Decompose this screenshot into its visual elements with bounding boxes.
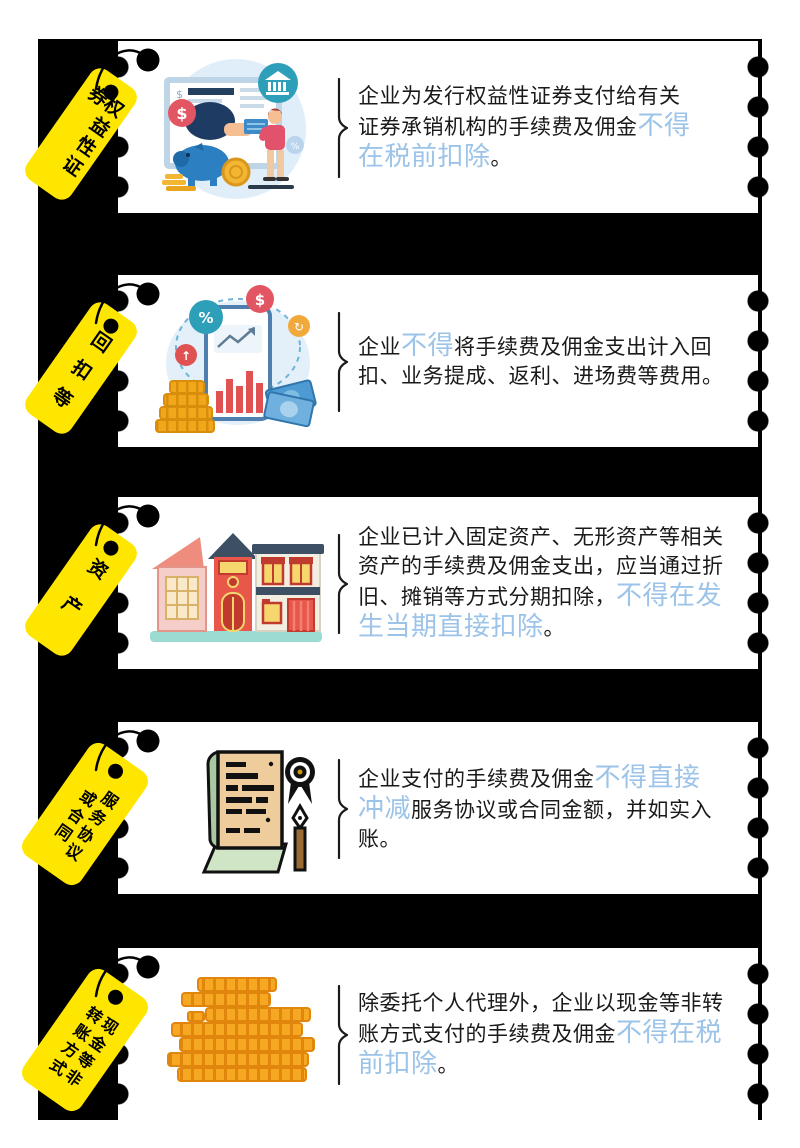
text-segment: 企业	[358, 336, 401, 359]
perforation-dots-right	[747, 963, 769, 1115]
card-text: 企业已计入固定资产、无形资产等相关 资产的手续费及佣金支出，应当通过折 旧、摊销…	[358, 497, 744, 669]
text-line: 生当期直接扣除。	[358, 612, 744, 643]
pin-dot	[137, 730, 160, 753]
highlight-segment: 生当期直接扣除	[358, 611, 544, 641]
info-row-rebates: 回扣等	[38, 275, 762, 447]
pin-dot	[137, 283, 160, 306]
pin-dot	[137, 505, 160, 528]
text-line: 除委托个人代理外，企业以现金等非转	[358, 989, 744, 1018]
text-segment: 企业支付的手续费及佣金	[358, 768, 595, 791]
text-line: 在税前扣除。	[358, 142, 744, 173]
text-line: 企业支付的手续费及佣金不得直接	[358, 763, 744, 794]
text-segment: 企业已计入固定资产、无形资产等相关	[358, 526, 724, 549]
highlight-segment: 不得	[638, 110, 691, 140]
text-line: 企业为发行权益性证券支付给有关	[358, 82, 744, 111]
perforation-dots-right	[747, 512, 769, 664]
string-and-pin	[78, 716, 198, 786]
text-line: 旧、摊销等方式分期扣除，不得在发	[358, 581, 744, 612]
tag-label: 回扣等	[39, 327, 113, 421]
card-text: 企业不得将手续费及佣金支出计入回 扣、业务提成、返利、进场费等费用。	[358, 275, 744, 447]
text-segment: 旧、摊销等方式分期扣除，	[358, 586, 616, 609]
text-segment: 。	[438, 1054, 460, 1077]
perforation-dots-right	[747, 737, 769, 889]
divider-chevron	[337, 533, 353, 635]
text-line: 证券承销机构的手续费及佣金不得	[358, 111, 744, 142]
text-segment: 企业为发行权益性证券支付给有关	[358, 85, 681, 108]
text-line: 扣、业务提成、返利、进场费等费用。	[358, 362, 744, 391]
text-segment: 将手续费及佣金支出计入回	[454, 336, 712, 359]
string-and-pin	[78, 942, 198, 1012]
svg-text:%: %	[198, 309, 213, 327]
pin-dot	[137, 956, 160, 979]
text-line: 企业已计入固定资产、无形资产等相关	[358, 523, 744, 552]
text-line: 账。	[358, 825, 744, 854]
divider-chevron	[337, 77, 353, 179]
text-segment: 服务协议或合同金额，并如实入	[411, 799, 712, 822]
string-and-pin	[78, 491, 198, 561]
highlight-segment: 不得在税	[616, 1017, 722, 1047]
string-and-pin	[78, 35, 198, 105]
perforation-dots-right	[747, 56, 769, 208]
divider-chevron	[337, 311, 353, 413]
highlight-segment: 不得直接	[595, 762, 701, 792]
text-line: 资产的手续费及佣金支出，应当通过折	[358, 552, 744, 581]
perforation-dots-right	[747, 290, 769, 442]
divider-chevron	[337, 758, 353, 860]
text-segment: 除委托个人代理外，企业以现金等非转	[358, 992, 724, 1015]
svg-text:%: %	[291, 142, 300, 152]
string-and-pin	[78, 269, 198, 339]
card-text: 企业支付的手续费及佣金不得直接 冲减服务协议或合同金额，并如实入 账。	[358, 722, 744, 894]
highlight-segment: 在税前扣除	[358, 141, 491, 171]
info-card: 企业已计入固定资产、无形资产等相关 资产的手续费及佣金支出，应当通过折 旧、摊销…	[118, 497, 758, 669]
black-panel: 权益性证券 $	[38, 39, 762, 1120]
info-card: $	[118, 41, 758, 213]
svg-text:$: $	[176, 104, 187, 123]
text-segment: 扣、业务提成、返利、进场费等费用。	[358, 365, 724, 388]
text-segment: 。	[491, 147, 513, 170]
info-card: % $ ↻ ↑	[118, 275, 758, 447]
text-line: 前扣除。	[358, 1049, 744, 1080]
card-text: 除委托个人代理外，企业以现金等非转 账方式支付的手续费及佣金不得在税 前扣除。	[358, 948, 744, 1120]
info-row-assets: 资产	[38, 497, 762, 669]
svg-text:↻: ↻	[294, 320, 304, 334]
info-card: 企业支付的手续费及佣金不得直接 冲减服务协议或合同金额，并如实入 账。	[118, 722, 758, 894]
text-line: 企业不得将手续费及佣金支出计入回	[358, 331, 744, 362]
info-row-equity-securities: 权益性证券 $	[38, 41, 762, 213]
text-line: 冲减服务协议或合同金额，并如实入	[358, 794, 744, 825]
text-segment: 账。	[358, 828, 401, 851]
card-text: 企业为发行权益性证券支付给有关 证券承销机构的手续费及佣金不得 在税前扣除。	[358, 41, 744, 213]
highlight-segment: 不得在发	[616, 580, 722, 610]
text-segment: 。	[544, 617, 566, 640]
highlight-segment: 前扣除	[358, 1048, 438, 1078]
highlight-segment: 不得	[401, 330, 454, 360]
highlight-segment: 冲减	[358, 793, 411, 823]
info-card: 除委托个人代理外，企业以现金等非转 账方式支付的手续费及佣金不得在税 前扣除。	[118, 948, 758, 1120]
text-segment: 证券承销机构的手续费及佣金	[358, 116, 638, 139]
info-row-service-agreement: 服务协议 或合同	[38, 722, 762, 894]
svg-text:$: $	[255, 291, 265, 309]
tag-label: 资产	[43, 554, 110, 639]
info-row-cash-payment: 现金等非 转账方式	[38, 948, 762, 1120]
text-segment: 资产的手续费及佣金支出，应当通过折	[358, 555, 724, 578]
pin-dot	[137, 49, 160, 72]
text-line: 账方式支付的手续费及佣金不得在税	[358, 1018, 744, 1049]
svg-text:↑: ↑	[181, 349, 191, 363]
divider-chevron	[337, 984, 353, 1086]
text-segment: 账方式支付的手续费及佣金	[358, 1023, 616, 1046]
